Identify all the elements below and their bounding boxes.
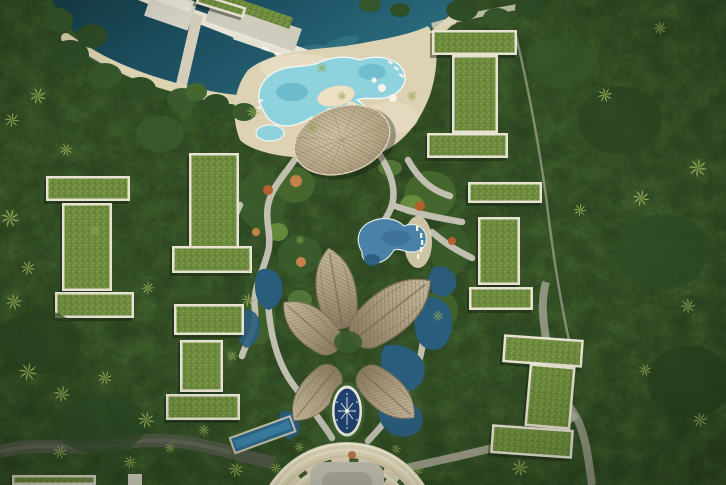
screenshot-frame	[0, 0, 726, 485]
vignette-overlay	[0, 0, 726, 485]
resort-aerial-rendering	[0, 0, 726, 485]
